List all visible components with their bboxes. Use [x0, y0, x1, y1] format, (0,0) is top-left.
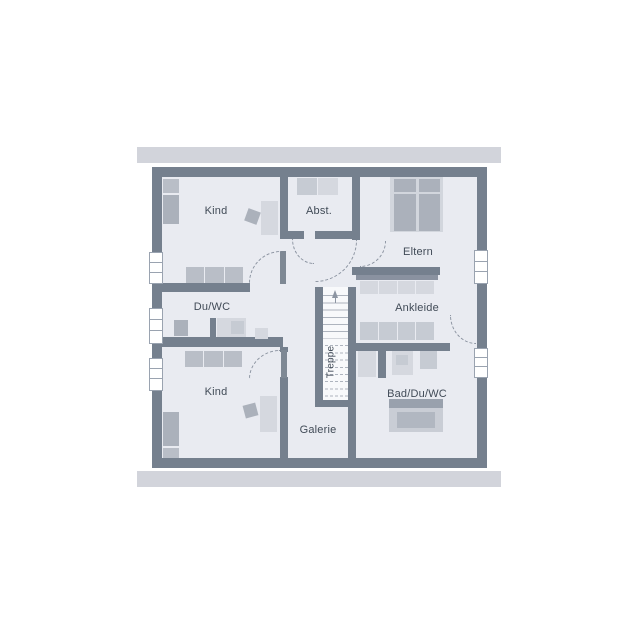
- shower-tray-inner: [231, 321, 244, 334]
- wardrobe-segment: [360, 281, 378, 294]
- bed-mattress-icon: [394, 194, 416, 231]
- wall-abst-left: [280, 177, 288, 235]
- shelf-segment: [318, 178, 338, 195]
- wardrobe-segment: [225, 267, 243, 283]
- washbasin-icon: [392, 351, 413, 375]
- desk-icon: [260, 396, 277, 432]
- room-label-eltern: Eltern: [403, 246, 433, 258]
- window-left-2: [149, 308, 163, 344]
- toilet-icon: [255, 328, 268, 339]
- stair-arrow-stem: [335, 297, 336, 303]
- window-left-3: [149, 358, 163, 391]
- window-left-1: [149, 252, 163, 284]
- wardrobe-segment: [416, 322, 434, 340]
- wall-stair-right: [348, 287, 356, 458]
- wall-kindbottom-right: [280, 377, 288, 458]
- wardrobe-segment: [398, 281, 416, 294]
- bathtub-basin-icon: [397, 412, 435, 428]
- wardrobe-segment: [185, 351, 203, 367]
- door-leaf-kind-bottom: [281, 350, 287, 378]
- washbasin-bowl: [396, 355, 408, 365]
- bed-pillow-icon: [419, 179, 440, 192]
- bed-icon: [163, 412, 179, 446]
- wall-stair-left: [315, 287, 323, 407]
- wardrobe-segment: [379, 322, 397, 340]
- bed-icon: [163, 195, 179, 224]
- wardrobe-icon: [185, 351, 242, 367]
- floor-plan: Kind Abst. Eltern Du/WC Ankleide Kind Ba…: [0, 0, 636, 636]
- roof-eave-bottom: [137, 471, 501, 487]
- room-label-ankleide: Ankleide: [395, 302, 439, 314]
- room-label-kind-top: Kind: [205, 205, 228, 217]
- shower-icon: [358, 351, 376, 377]
- bed-pillow-icon: [394, 179, 416, 192]
- washbasin-icon: [420, 351, 437, 369]
- room-label-du-wc: Du/WC: [194, 301, 230, 313]
- wardrobe-segment: [398, 322, 416, 340]
- stair-label-treppe: Treppe: [326, 346, 337, 379]
- wall-kindtop-bottom: [152, 283, 250, 292]
- wardrobe-segment: [224, 351, 242, 367]
- wall-bad-top: [356, 343, 450, 351]
- wardrobe-segment: [379, 281, 397, 294]
- room-label-abst: Abst.: [306, 205, 332, 217]
- wardrobe-segment: [416, 281, 434, 294]
- window-right-1: [474, 250, 488, 284]
- wardrobe-segment: [204, 351, 222, 367]
- window-right-2: [474, 348, 488, 378]
- wardrobe-icon: [360, 281, 434, 294]
- room-label-kind-bottom: Kind: [205, 386, 228, 398]
- room-label-bad-du-wc: Bad/Du/WC: [387, 388, 447, 400]
- wardrobe-segment: [186, 267, 204, 283]
- desk-icon: [261, 201, 278, 235]
- room-label-galerie: Galerie: [300, 424, 337, 436]
- bed-pillow-icon: [163, 448, 179, 458]
- sink-icon: [174, 320, 188, 336]
- wardrobe-segment: [205, 267, 223, 283]
- wall-bad-stub: [378, 351, 386, 378]
- wardrobe-icon: [360, 322, 434, 340]
- wardrobe-rail-icon: [356, 275, 438, 280]
- wardrobe-segment: [360, 322, 378, 340]
- shelf-segment: [297, 178, 317, 195]
- roof-eave-top: [137, 147, 501, 163]
- bed-mattress-icon: [419, 194, 440, 231]
- wall-abst-bottom: [280, 231, 304, 239]
- shelf-icon: [297, 178, 338, 195]
- wall-stair-bottom: [315, 400, 356, 407]
- wall-eltern-ankleide: [352, 267, 440, 275]
- bathtub-shelf-icon: [389, 399, 443, 408]
- wall-stair-top: [315, 231, 360, 239]
- bed-pillow-icon: [163, 179, 179, 193]
- wall-duwc-partition: [210, 318, 216, 337]
- wardrobe-icon: [186, 267, 243, 283]
